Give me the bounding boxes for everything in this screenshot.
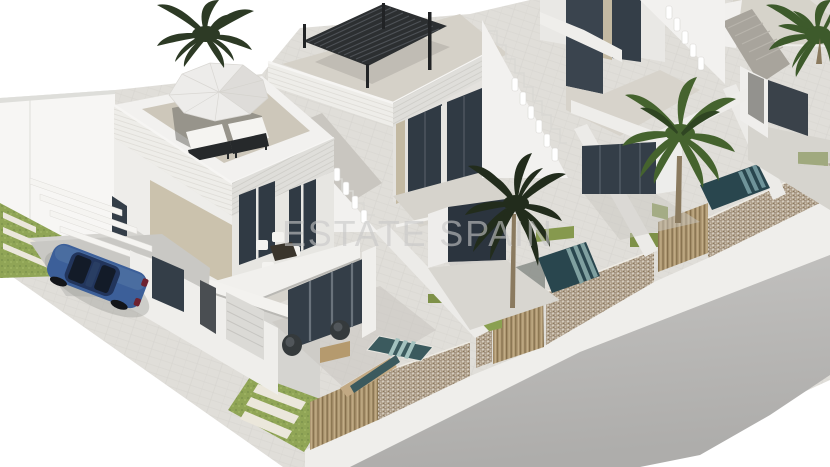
svg-text:ESTATE SPAIN: ESTATE SPAIN	[282, 213, 554, 254]
